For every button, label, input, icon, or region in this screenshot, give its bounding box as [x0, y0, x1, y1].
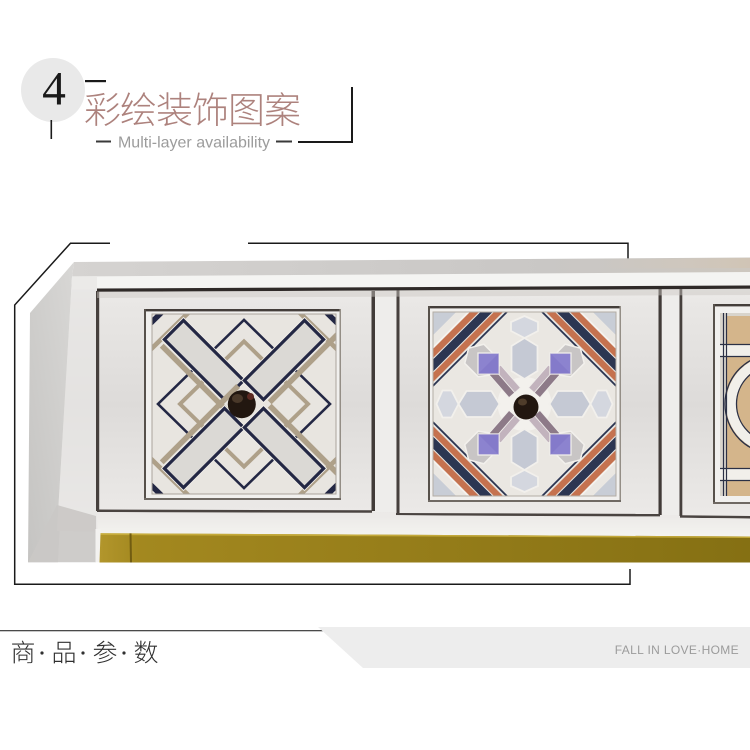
svg-text:Multi-layer availability: Multi-layer availability — [118, 135, 270, 152]
svg-text:4: 4 — [42, 64, 66, 116]
svg-text:FALL IN LOVE·HOME: FALL IN LOVE·HOME — [615, 643, 739, 657]
